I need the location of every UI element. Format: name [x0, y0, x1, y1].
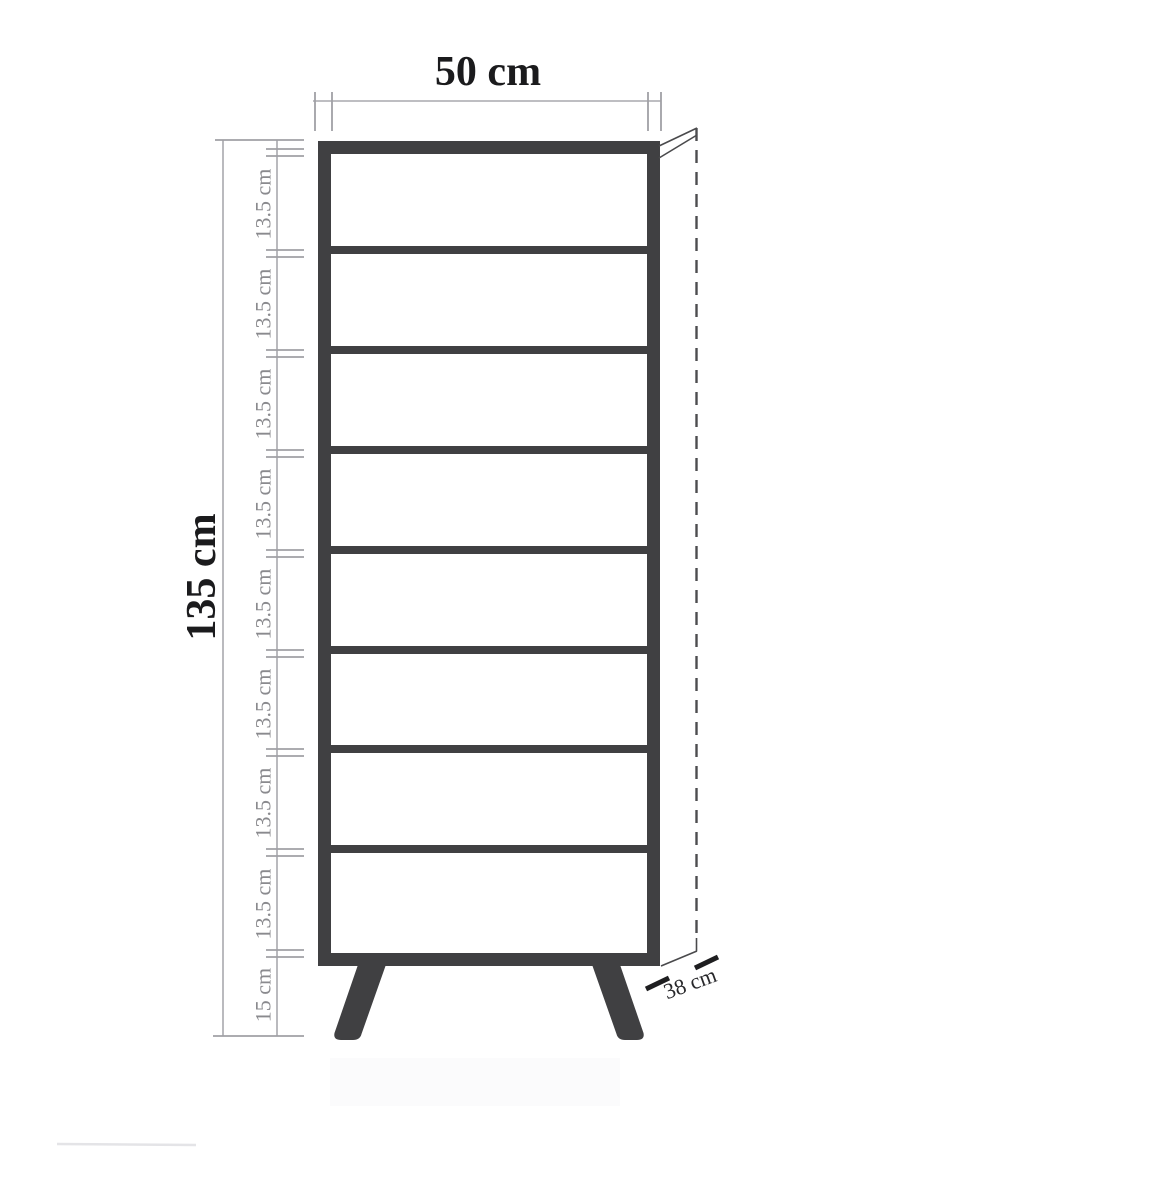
depth-projection [659, 128, 697, 966]
depth-top-edge-upper [659, 128, 697, 146]
shadow-artifact [330, 1058, 620, 1106]
furniture-dimension-diagram: 50 cm 135 cm 13.5 cm 13.5 cm 13.5 cm 13.… [0, 0, 1155, 1200]
dimension-drawing-svg: 50 cm 135 cm 13.5 cm 13.5 cm 13.5 cm 13.… [0, 0, 1155, 1200]
shelf-segment-label: 13.5 cm [251, 669, 276, 740]
cabinet-left-leg [334, 956, 389, 1040]
width-dimension: 50 cm [313, 49, 661, 131]
height-dimension-label: 135 cm [179, 513, 225, 640]
shelf-segment-label: 13.5 cm [251, 569, 276, 640]
shelf-segment-label: 13.5 cm [251, 169, 276, 240]
leg-height-label: 15 cm [251, 968, 276, 1022]
depth-bottom-edge [661, 951, 697, 966]
scan-artifact-line [57, 1144, 196, 1145]
width-extension-ticks [315, 92, 661, 131]
depth-top-edge-lower [659, 135, 697, 158]
depth-dimension-label: 38 cm [660, 962, 720, 1004]
width-dimension-label: 50 cm [435, 49, 541, 95]
cabinet-right-leg [589, 956, 644, 1040]
shelf-segment-label: 13.5 cm [251, 869, 276, 940]
shelf-segment-label: 13.5 cm [251, 768, 276, 839]
height-dimension: 135 cm 13.5 cm 13.5 cm 13.5 cm 13.5 cm 1… [179, 140, 304, 1036]
shelf-segment-label: 13.5 cm [251, 469, 276, 540]
cabinet [318, 141, 660, 1040]
shelf-segment-label: 13.5 cm [251, 369, 276, 440]
shelf-segment-label: 13.5 cm [251, 269, 276, 340]
